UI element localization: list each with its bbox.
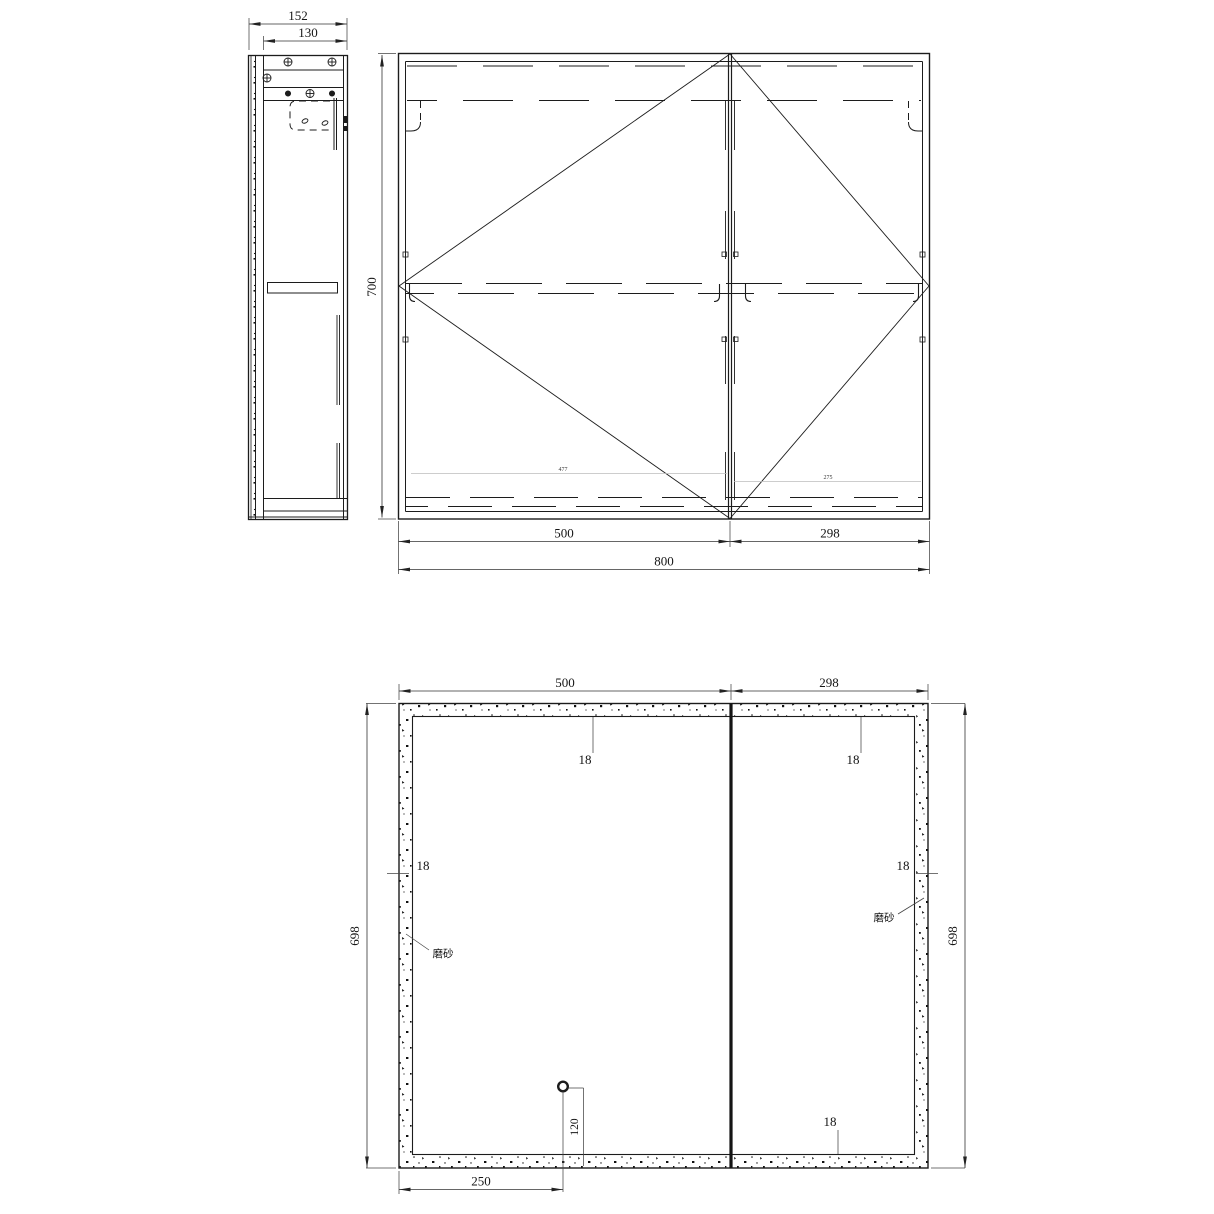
hole-mark (558, 1082, 568, 1092)
label-frosted-left: 磨砂 (433, 947, 454, 960)
dim-label-right-door: 298 (820, 526, 840, 541)
drawing-canvas: 152 130 (0, 0, 1214, 1214)
dim-label-overall-width: 800 (654, 554, 674, 569)
dim-label-hole-from-left: 250 (471, 1174, 491, 1189)
dim-label-border-bottom: 18 (824, 1114, 837, 1129)
label-frosted-right: 磨砂 (874, 911, 895, 924)
dim-label-border-top-left: 18 (579, 752, 592, 767)
dim-label-border-side-right: 18 (897, 858, 910, 873)
dim-label-panel-right-height: 698 (945, 926, 960, 946)
dim-label-overall-depth: 152 (288, 8, 308, 23)
dim-label-hole-from-bottom: 120 (569, 1118, 581, 1136)
dim-label-panel-left-height: 698 (347, 926, 362, 946)
dim-label-height: 700 (364, 277, 379, 297)
cad-drawing: 152 130 (0, 0, 1214, 1214)
mirror-edge-stipple (249, 56, 255, 518)
dim-label-right-inner: 275 (824, 475, 833, 481)
dim-label-border-side-left: 18 (417, 858, 430, 873)
dim-label-left-inner: 477 (559, 467, 568, 473)
dim-label-border-top-right: 18 (847, 752, 860, 767)
dim-label-left-door: 500 (554, 526, 574, 541)
dim-label-panel-right-width: 298 (819, 675, 839, 690)
background (0, 0, 1214, 1214)
dim-label-body-depth: 130 (298, 25, 318, 40)
dim-label-panel-left-width: 500 (555, 675, 575, 690)
